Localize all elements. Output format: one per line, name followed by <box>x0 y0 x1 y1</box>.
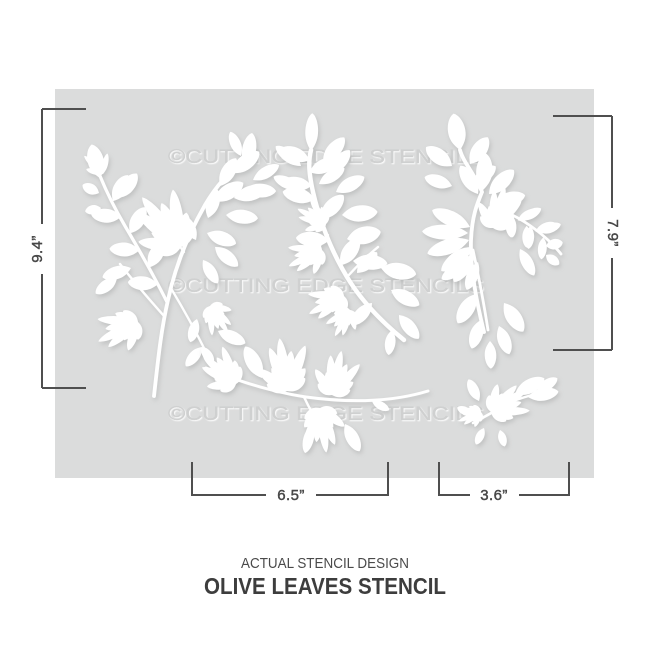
svg-text:ACTUAL STENCIL DESIGN: ACTUAL STENCIL DESIGN <box>241 555 409 572</box>
svg-text:OLIVE LEAVES STENCIL: OLIVE LEAVES STENCIL <box>204 573 446 599</box>
svg-text:3.6”: 3.6” <box>480 487 507 504</box>
svg-text:7.9”: 7.9” <box>604 219 621 246</box>
svg-text:6.5”: 6.5” <box>277 487 304 504</box>
svg-text:9.4”: 9.4” <box>29 235 46 262</box>
